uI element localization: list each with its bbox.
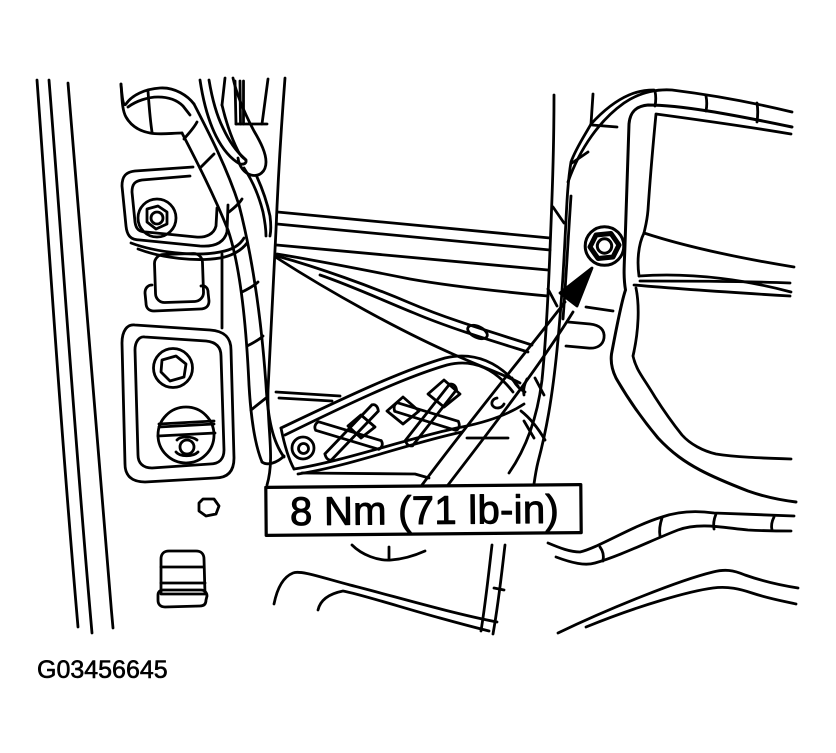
svg-text:G03456645: G03456645	[37, 656, 168, 684]
svg-text:8 Nm (71 lb-in): 8 Nm (71 lb-in)	[290, 488, 559, 534]
